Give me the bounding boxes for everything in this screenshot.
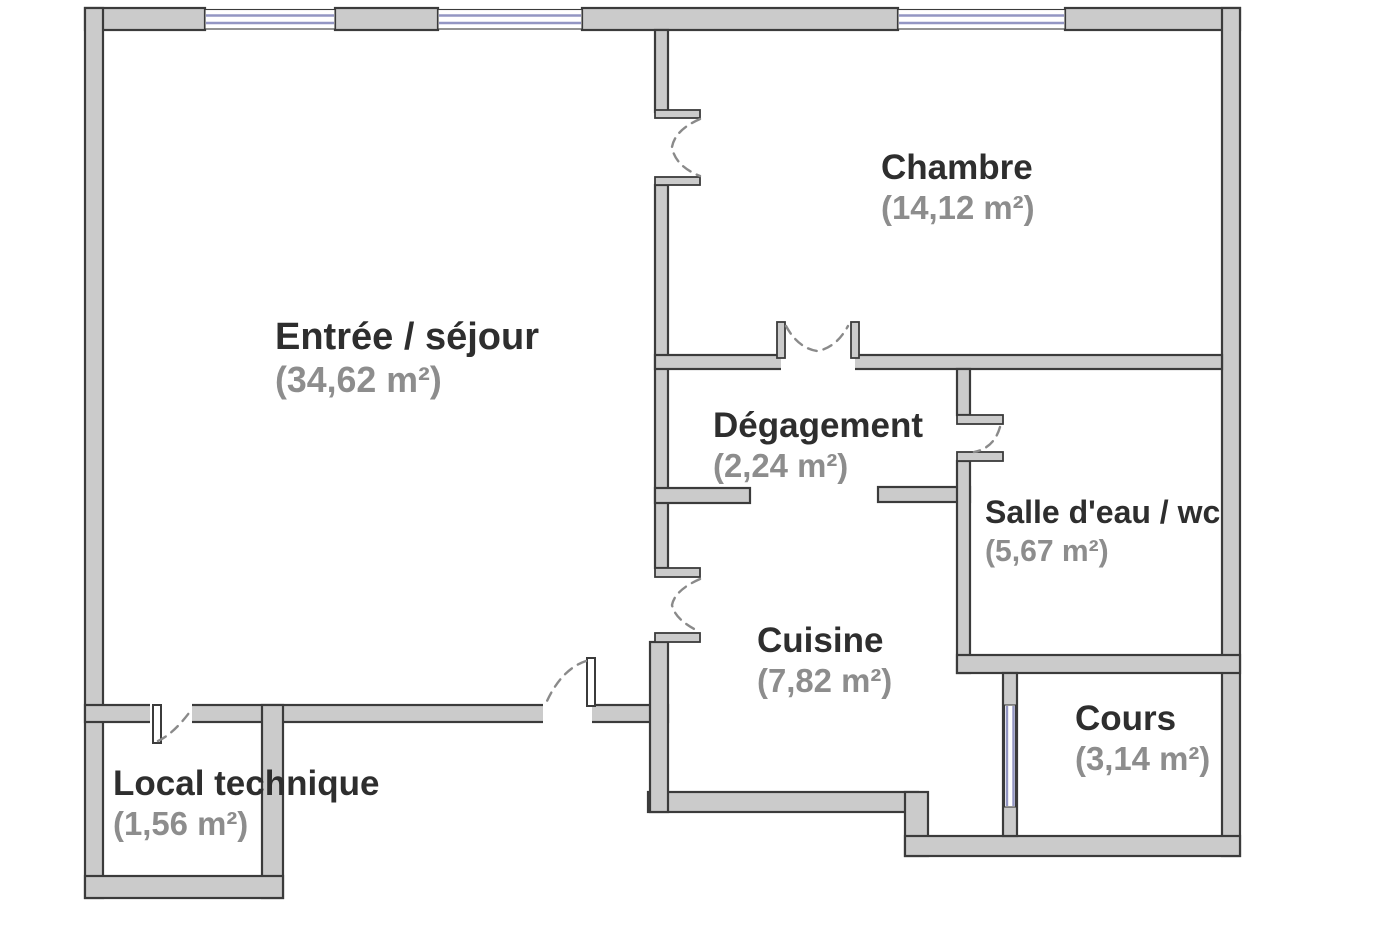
room-name: Salle d'eau / wc	[985, 493, 1222, 532]
chambre-door-arc	[672, 119, 700, 176]
room-area: (7,82 m²)	[757, 661, 892, 701]
room-name: Cuisine	[757, 621, 892, 661]
room-label-salle-deau-wc: Salle d'eau / wc (5,67 m²)	[985, 493, 1222, 579]
room-label-cours: Cours (3,14 m²)	[1075, 699, 1210, 779]
room-area: (3,14 m²)	[1075, 739, 1210, 779]
room-name: Dégagement	[713, 406, 923, 446]
window-sejour-right	[438, 10, 582, 30]
room-label-cuisine: Cuisine (7,82 m²)	[757, 621, 892, 701]
room-label-entree-sejour: Entrée / séjour (34,62 m²)	[275, 316, 539, 402]
room-label-chambre: Chambre (14,12 m²)	[881, 148, 1035, 228]
floor-plan: Entrée / séjour (34,62 m²) Chambre (14,1…	[0, 0, 1400, 950]
door-leaves	[153, 658, 595, 743]
room-area: (5,67 m²)	[985, 532, 1222, 571]
room-name: Local technique	[113, 764, 379, 804]
room-area: (14,12 m²)	[881, 188, 1035, 228]
window-sejour-left	[205, 10, 335, 30]
room-area: (34,62 m²)	[275, 359, 539, 402]
room-name: Chambre	[881, 148, 1035, 188]
room-name: Cours	[1075, 699, 1210, 739]
window-cours	[1005, 705, 1016, 807]
local-technique-door-leaf	[153, 705, 161, 743]
cuisine-door-arc	[672, 579, 700, 632]
room-area: (1,56 m²)	[113, 804, 379, 844]
room-area: (2,24 m²)	[713, 446, 923, 486]
room-label-degagement: Dégagement (2,24 m²)	[713, 406, 923, 486]
room-label-local-technique: Local technique (1,56 m²)	[113, 764, 379, 844]
degagement-door-arc	[786, 326, 848, 351]
room-name: Entrée / séjour	[275, 316, 539, 359]
window-chambre	[898, 10, 1065, 30]
salle-deau-door-arc	[974, 427, 1000, 452]
entrance-door-arc	[547, 661, 586, 701]
entrance-door-leaf	[587, 658, 595, 706]
